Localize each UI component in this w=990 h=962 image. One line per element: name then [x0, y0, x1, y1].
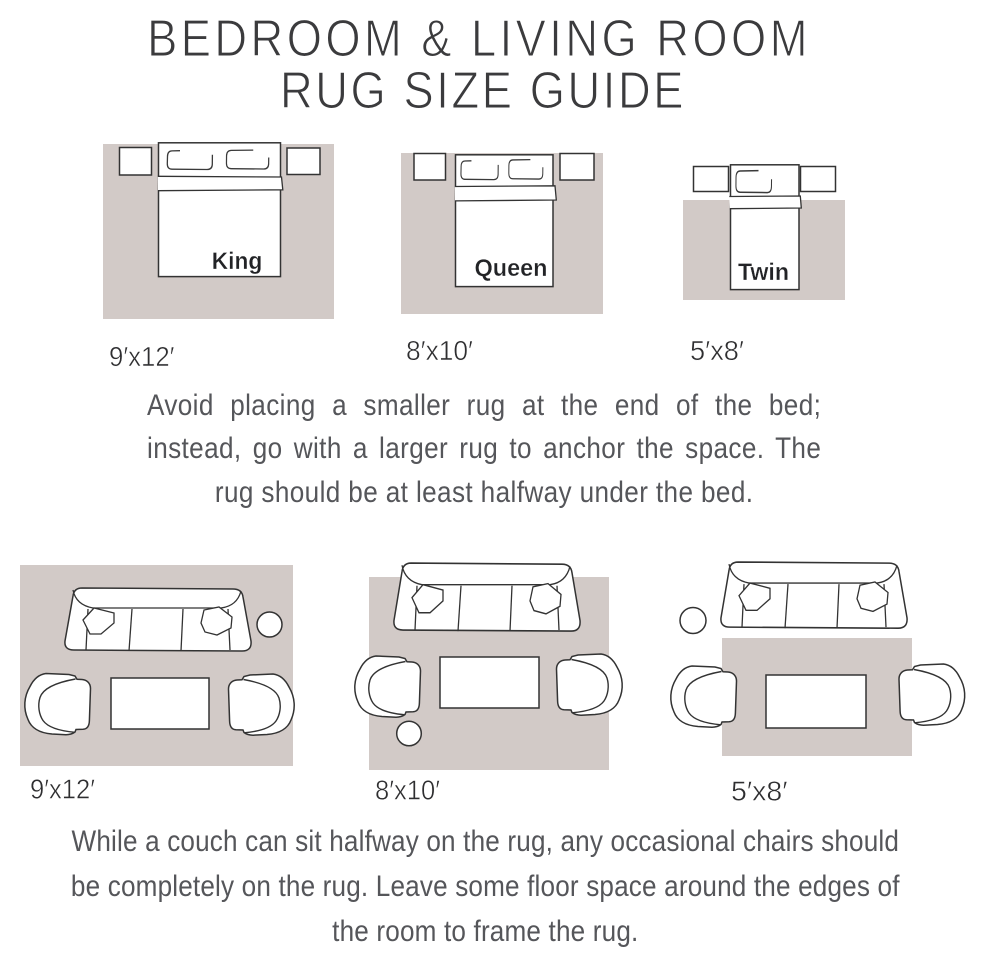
svg-text:8′x10′: 8′x10′	[406, 335, 473, 366]
svg-text:Queen: Queen	[475, 255, 548, 282]
svg-text:9′x12′: 9′x12′	[109, 341, 175, 372]
svg-text:Twin: Twin	[738, 259, 789, 286]
svg-text:8′x10′: 8′x10′	[375, 775, 440, 806]
svg-text:King: King	[212, 248, 263, 275]
svg-text:9′x12′: 9′x12′	[30, 774, 95, 805]
svg-text:5′x8′: 5′x8′	[690, 335, 744, 366]
svg-text:5′x8′: 5′x8′	[731, 776, 788, 807]
